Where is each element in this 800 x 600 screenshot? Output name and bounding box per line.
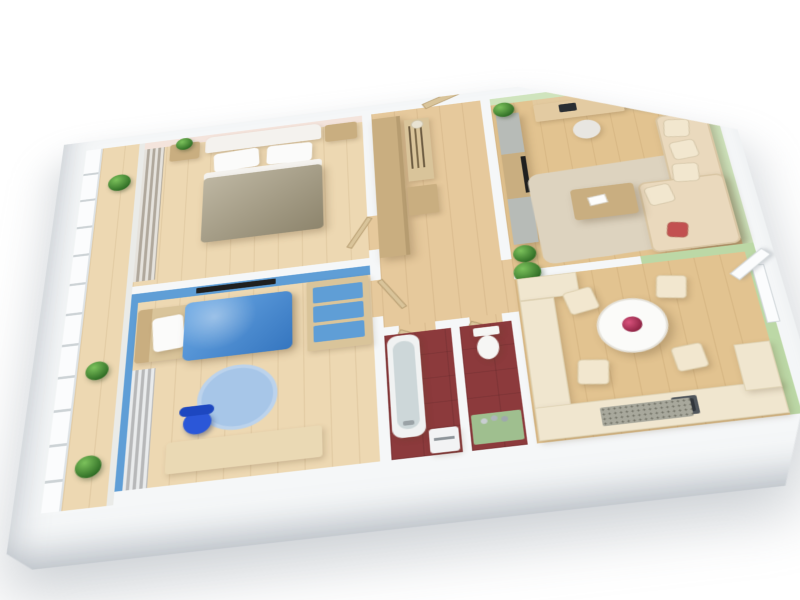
apartment-building-slab	[4, 61, 800, 573]
dining-chair	[670, 342, 710, 372]
floor-plan	[41, 72, 800, 514]
wc-green-mat	[471, 409, 525, 444]
entry-door	[422, 88, 462, 109]
blue-drawer	[313, 301, 364, 323]
blue-duvet	[182, 290, 292, 361]
toilet-bowl	[476, 334, 501, 360]
room-wc	[459, 321, 527, 451]
room-master-bedroom	[132, 116, 369, 287]
toiletry-bottle	[501, 416, 509, 422]
shoe-bench	[407, 184, 439, 216]
hanger	[420, 125, 426, 168]
blue-drawer	[313, 320, 365, 342]
floorplan-scene	[4, 61, 800, 573]
single-bed	[134, 292, 292, 364]
kitchen-window	[751, 264, 781, 323]
shelf-unit	[306, 275, 371, 352]
office-chair	[571, 118, 602, 140]
room-bathroom	[384, 328, 463, 460]
living-wall-top	[490, 72, 707, 106]
media-cabinet-gray	[496, 112, 525, 154]
washer-slot	[434, 436, 455, 441]
blue-drawer	[313, 282, 363, 304]
pillow	[152, 314, 185, 353]
bathtub-basin	[392, 340, 420, 430]
toiletry-bottle	[480, 418, 487, 424]
coat-rack	[404, 117, 434, 181]
dining-chair	[656, 275, 687, 298]
washing-machine	[429, 426, 461, 454]
living-plant	[512, 244, 537, 264]
bathtub	[387, 333, 427, 439]
sofa-cushion	[663, 119, 690, 137]
toiletry-bottle	[490, 415, 497, 421]
hanger	[408, 126, 413, 169]
red-accent-cushion	[667, 222, 689, 238]
room-kids-bedroom	[114, 266, 380, 492]
apartment-3d-floorplan-render	[0, 0, 800, 600]
room-living	[490, 72, 754, 272]
khaki-duvet	[201, 164, 324, 243]
sofa-cushion	[671, 162, 700, 182]
room-kitchen-dining	[514, 250, 800, 443]
dining-chair	[577, 359, 609, 384]
hanger	[414, 128, 419, 168]
sofa-chaise-section	[637, 173, 742, 253]
nightstand	[325, 121, 358, 142]
double-bed	[201, 123, 324, 243]
